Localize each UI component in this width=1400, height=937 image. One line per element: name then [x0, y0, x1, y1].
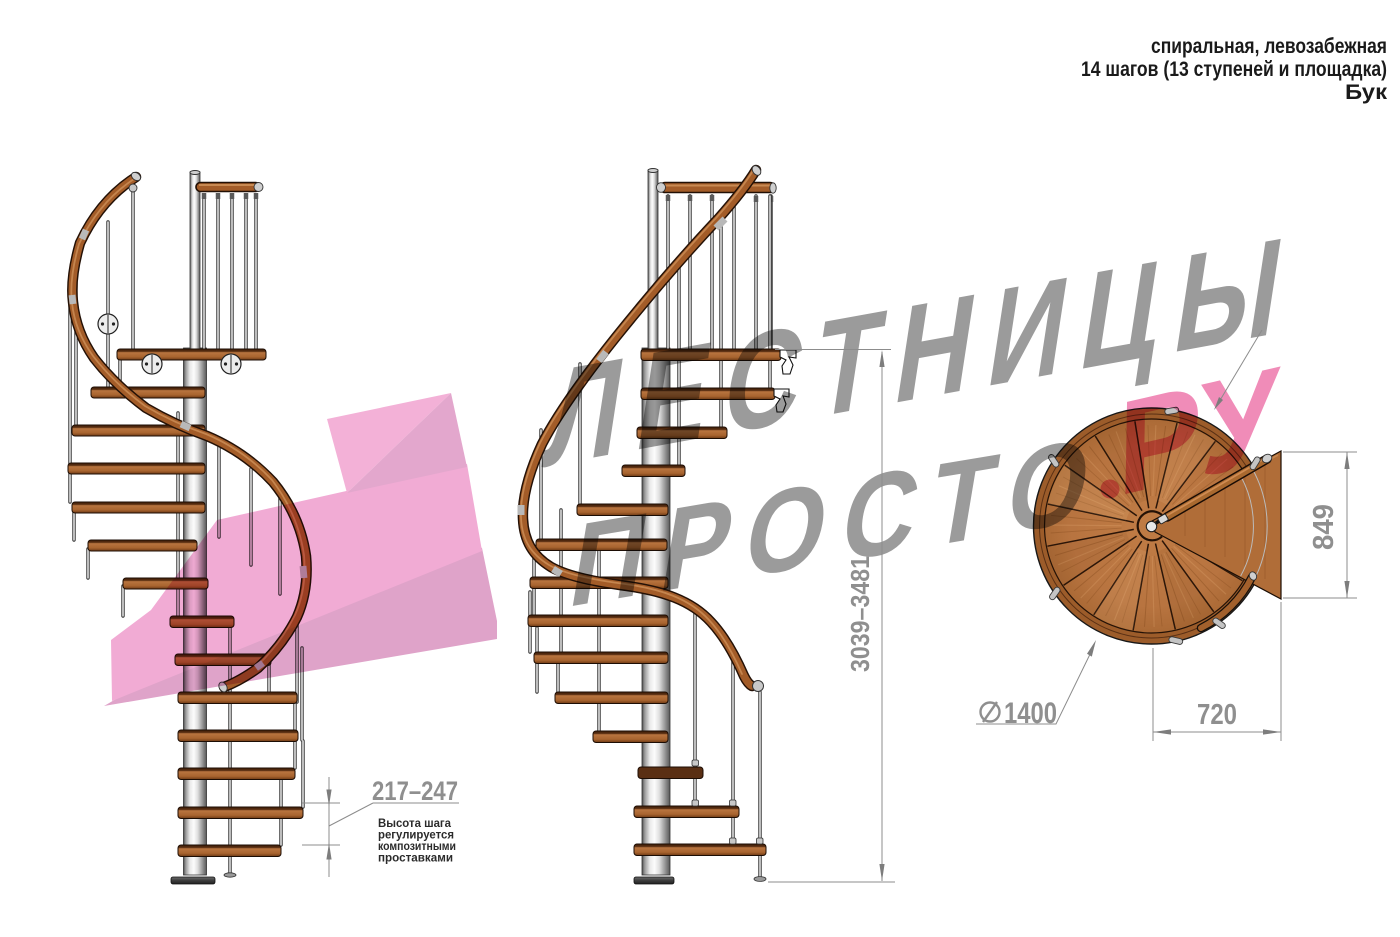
svg-text:217–247: 217–247: [372, 776, 458, 806]
svg-text:3039–3481: 3039–3481: [845, 556, 875, 672]
svg-text:спиральная, левозабежная: спиральная, левозабежная: [1151, 35, 1387, 58]
svg-text:Бук: Бук: [1345, 81, 1388, 104]
svg-text:проставками: проставками: [378, 851, 453, 865]
svg-text:1400: 1400: [1004, 697, 1057, 730]
svg-text:14 шагов (13 ступеней и площад: 14 шагов (13 ступеней и площадка): [1081, 58, 1387, 81]
svg-text:720: 720: [1197, 699, 1237, 731]
svg-text:849: 849: [1308, 504, 1340, 550]
